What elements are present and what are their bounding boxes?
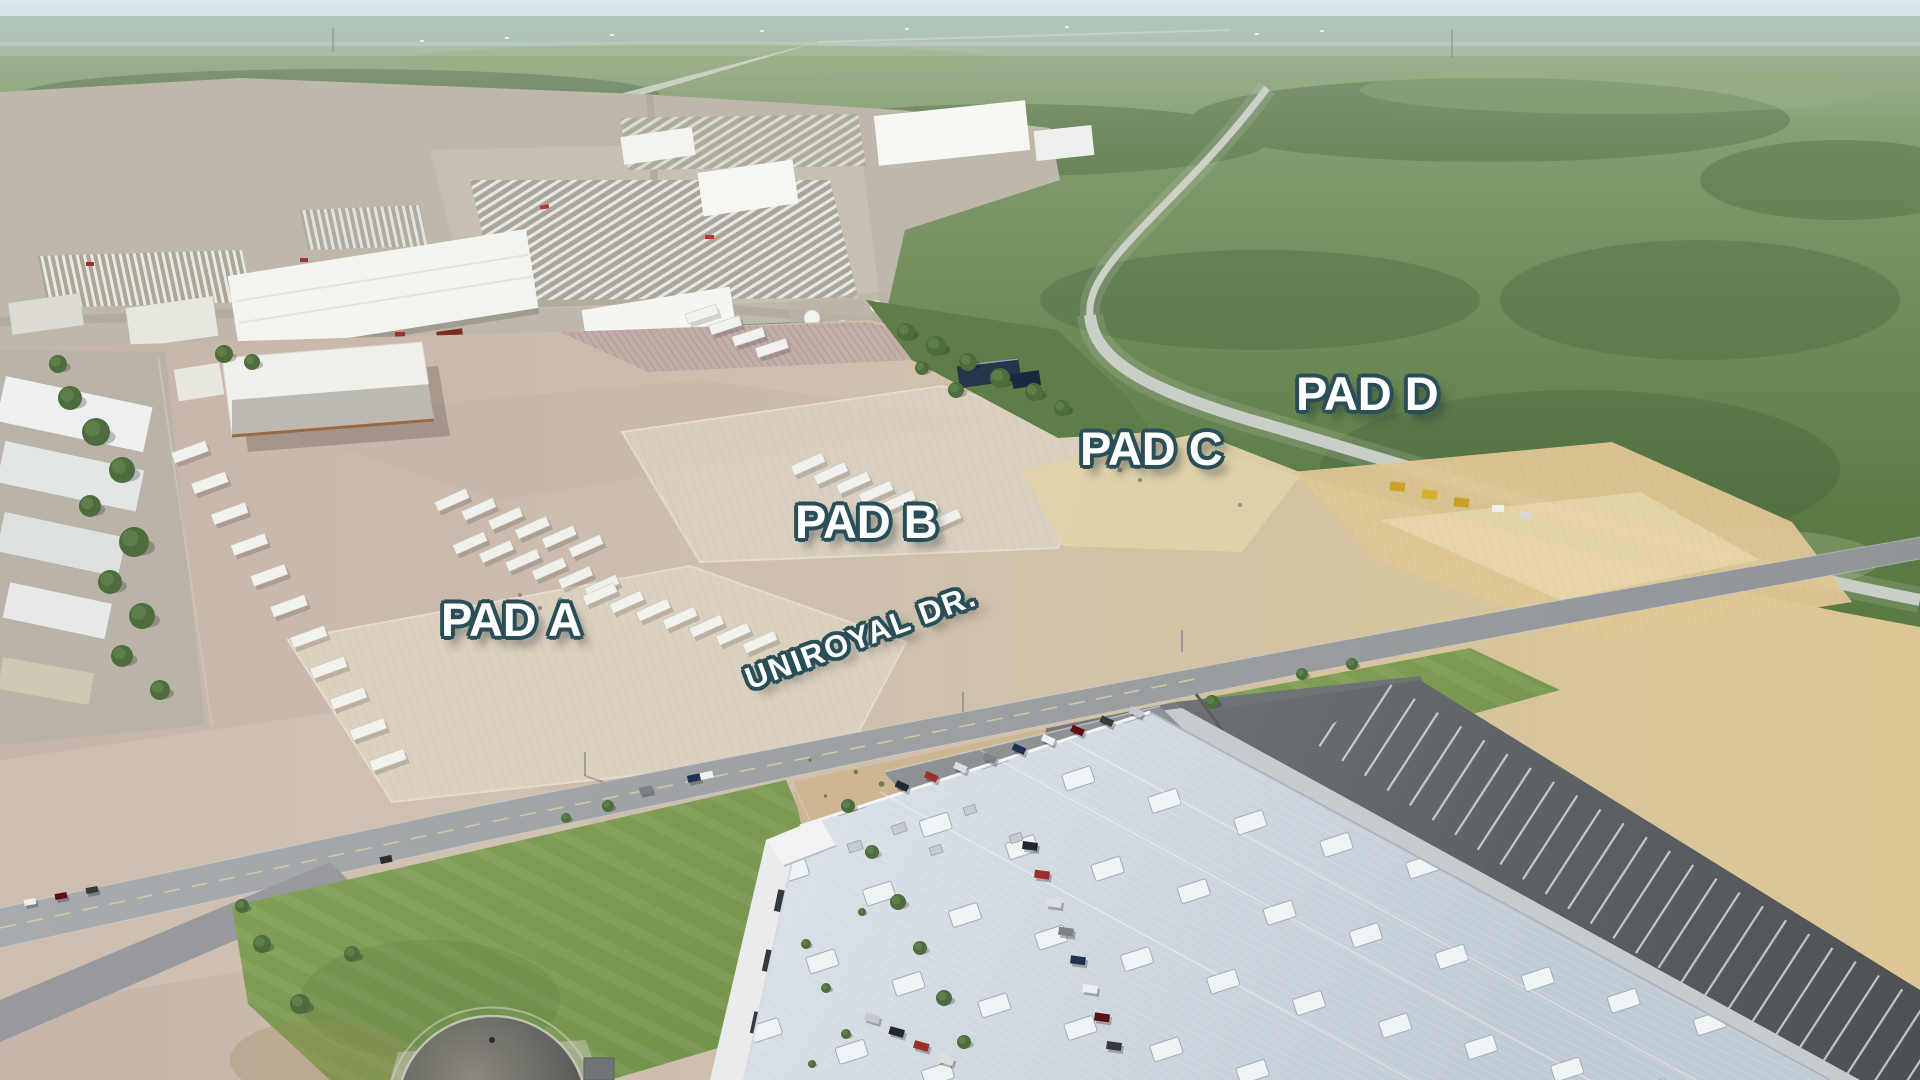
pad-c-label: PAD C bbox=[1080, 425, 1223, 472]
tank-outbuilding bbox=[584, 1058, 614, 1080]
pad-a-label: PAD A bbox=[441, 596, 582, 643]
aerial-photo: PAD A PAD B PAD C PAD D UNIROYAL DR. bbox=[0, 0, 1920, 1080]
horizon-haze bbox=[0, 16, 1920, 46]
terrain-illustration bbox=[0, 0, 1920, 1080]
pad-b-label: PAD B bbox=[795, 498, 938, 545]
pad-d-label: PAD D bbox=[1296, 370, 1439, 417]
